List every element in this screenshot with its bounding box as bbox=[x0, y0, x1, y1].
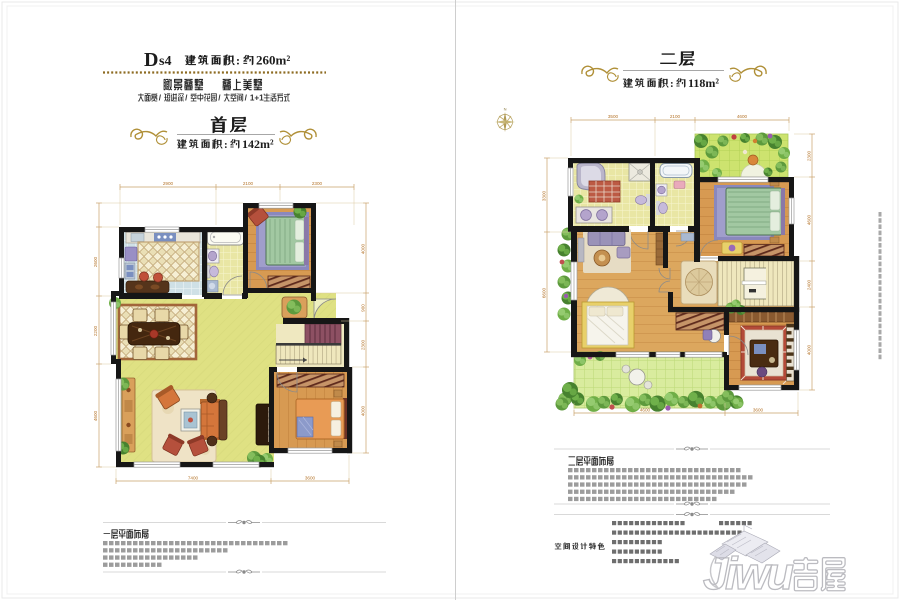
svg-text:3300: 3300 bbox=[542, 190, 547, 201]
svg-text:4600: 4600 bbox=[737, 114, 748, 119]
svg-text:s4: s4 bbox=[159, 54, 171, 69]
svg-text:4000: 4000 bbox=[807, 344, 812, 355]
svg-text:3600: 3600 bbox=[753, 408, 764, 413]
svg-text:2100: 2100 bbox=[243, 181, 254, 186]
svg-text:2100: 2100 bbox=[670, 114, 681, 119]
svg-text:1+1: 1+1 bbox=[250, 94, 264, 103]
svg-text::: : bbox=[670, 78, 674, 90]
svg-text:6600: 6600 bbox=[542, 287, 547, 298]
svg-text::: : bbox=[236, 54, 240, 68]
svg-text:7400: 7400 bbox=[188, 476, 199, 481]
svg-text:260m²: 260m² bbox=[256, 53, 290, 68]
svg-text:900: 900 bbox=[361, 304, 366, 312]
svg-text:4600: 4600 bbox=[93, 410, 98, 421]
svg-text::: : bbox=[224, 139, 228, 151]
svg-text:Jiwu: Jiwu bbox=[703, 548, 794, 599]
svg-text:D: D bbox=[144, 49, 158, 71]
svg-text:3500: 3500 bbox=[608, 114, 619, 119]
svg-text:4600: 4600 bbox=[807, 214, 812, 225]
svg-text:2300: 2300 bbox=[361, 339, 366, 350]
svg-text:4000: 4000 bbox=[361, 405, 366, 416]
svg-text:2300: 2300 bbox=[807, 150, 812, 161]
svg-text:2900: 2900 bbox=[163, 181, 174, 186]
svg-text:118m²: 118m² bbox=[688, 76, 719, 90]
svg-text:142m²: 142m² bbox=[242, 137, 274, 151]
svg-text:2200: 2200 bbox=[93, 325, 98, 336]
svg-text:N: N bbox=[504, 107, 507, 112]
svg-text:3600: 3600 bbox=[305, 476, 316, 481]
svg-text:2600: 2600 bbox=[93, 256, 98, 267]
svg-text:2400: 2400 bbox=[807, 279, 812, 290]
svg-text:4000: 4000 bbox=[361, 243, 366, 254]
svg-text:2300: 2300 bbox=[312, 181, 323, 186]
svg-text:4600: 4600 bbox=[640, 408, 651, 413]
